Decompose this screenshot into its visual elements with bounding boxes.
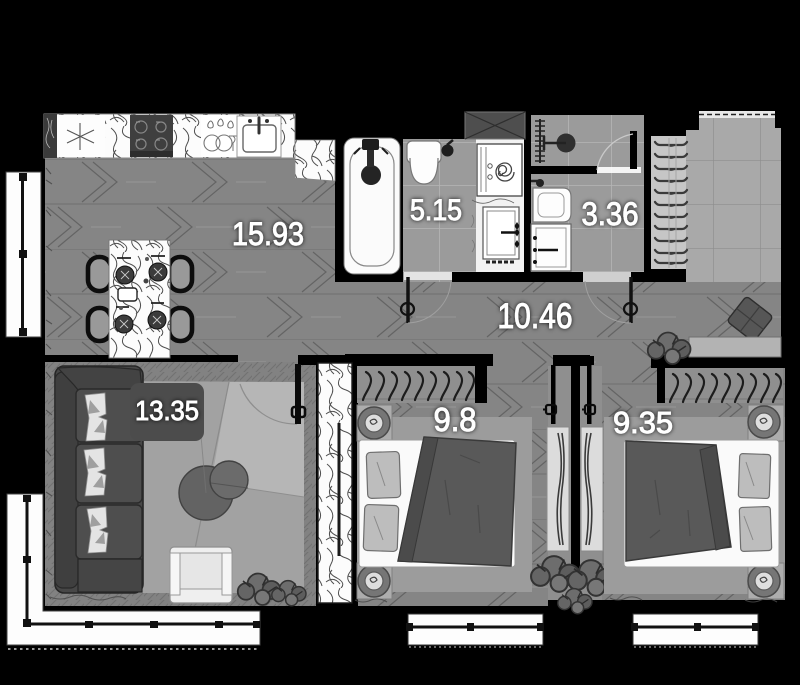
svg-text:13.35: 13.35 [135, 395, 199, 426]
svg-text:10.46: 10.46 [498, 297, 573, 336]
svg-text:15.93: 15.93 [232, 216, 304, 252]
svg-text:3.36: 3.36 [582, 196, 639, 232]
svg-text:9.8: 9.8 [434, 401, 477, 438]
svg-text:5.15: 5.15 [410, 194, 462, 227]
svg-text:9.35: 9.35 [613, 405, 673, 440]
